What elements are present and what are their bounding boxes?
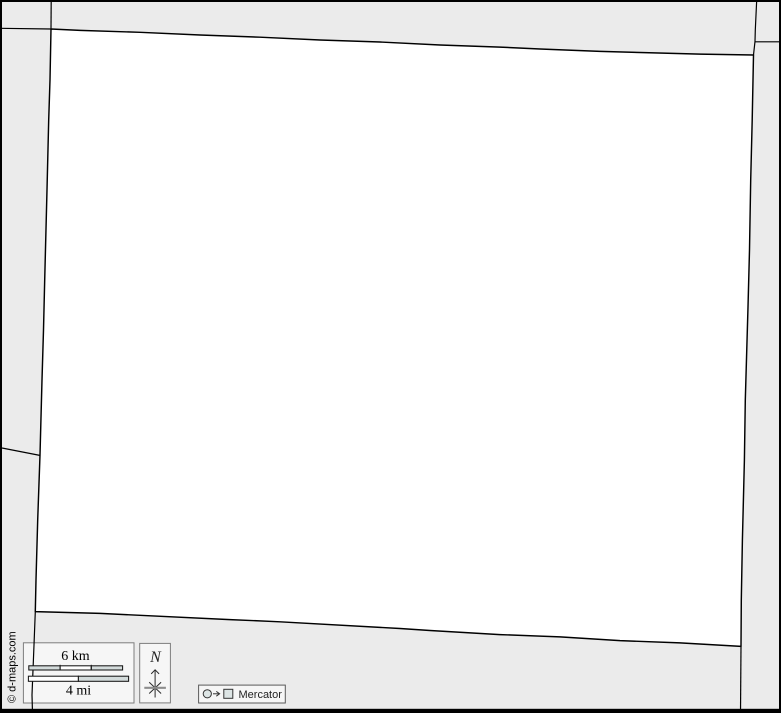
svg-text:4 mi: 4 mi [66, 684, 91, 699]
svg-text:© d-maps.com: © d-maps.com [7, 631, 19, 703]
svg-text:N: N [149, 649, 162, 666]
svg-text:Mercator: Mercator [239, 689, 283, 701]
svg-text:6 km: 6 km [61, 649, 90, 664]
